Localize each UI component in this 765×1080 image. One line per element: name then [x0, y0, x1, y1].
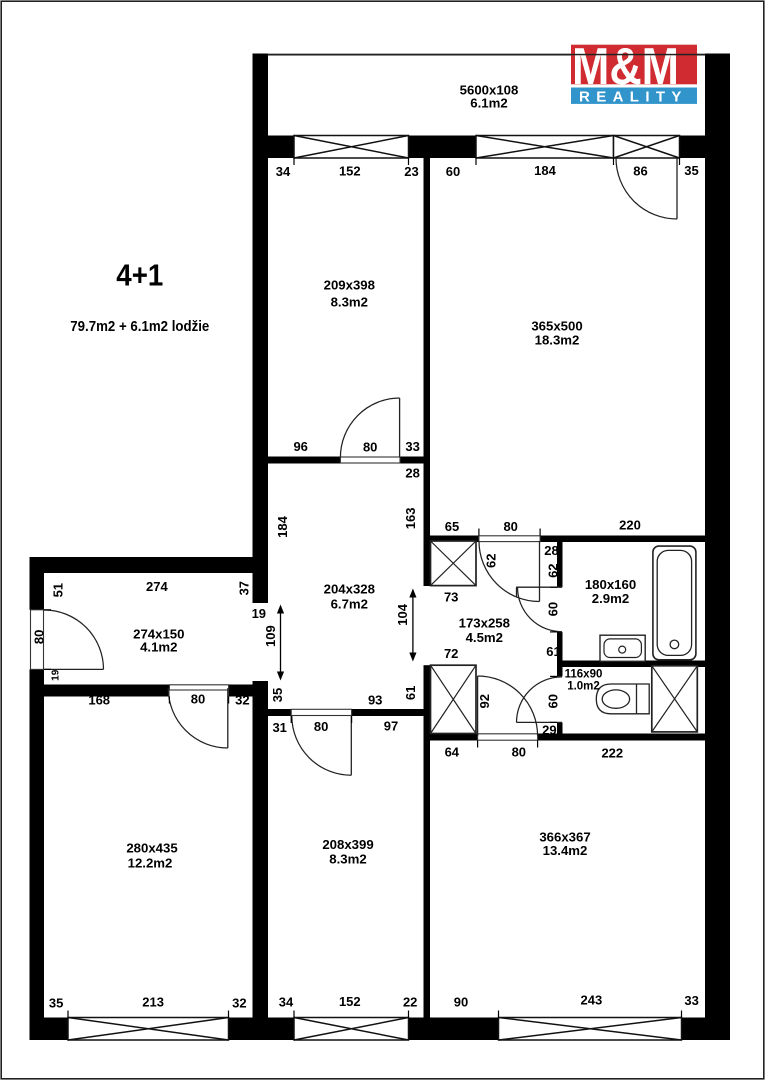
svg-text:222: 222 [601, 745, 623, 760]
svg-text:65: 65 [445, 519, 459, 534]
svg-text:80: 80 [314, 719, 328, 734]
svg-text:6.1m2: 6.1m2 [470, 96, 507, 111]
svg-text:61: 61 [403, 686, 418, 700]
svg-text:2.9m2: 2.9m2 [592, 591, 629, 606]
svg-text:220: 220 [619, 517, 641, 532]
svg-text:104: 104 [395, 603, 410, 625]
svg-text:37: 37 [236, 581, 251, 595]
svg-text:243: 243 [581, 992, 603, 1007]
svg-text:97: 97 [384, 718, 398, 733]
svg-text:M&M: M&M [572, 38, 679, 96]
svg-text:72: 72 [444, 646, 458, 661]
svg-text:184: 184 [534, 163, 556, 178]
svg-text:29: 29 [542, 722, 556, 737]
svg-text:173x258: 173x258 [459, 616, 510, 631]
svg-text:280x435: 280x435 [126, 841, 177, 856]
svg-text:60: 60 [545, 694, 560, 708]
svg-text:168: 168 [88, 692, 110, 707]
svg-text:213: 213 [142, 994, 164, 1009]
svg-text:180x160: 180x160 [585, 577, 636, 592]
svg-text:35: 35 [49, 995, 63, 1010]
svg-text:109: 109 [263, 625, 278, 647]
svg-text:34: 34 [276, 164, 291, 179]
svg-text:23: 23 [404, 164, 418, 179]
svg-text:33: 33 [684, 993, 698, 1008]
svg-text:96: 96 [293, 439, 307, 454]
svg-text:90: 90 [454, 994, 468, 1009]
svg-text:61: 61 [546, 644, 560, 659]
svg-text:32: 32 [235, 692, 249, 707]
svg-text:116x90: 116x90 [565, 668, 603, 680]
svg-text:204x328: 204x328 [324, 582, 375, 597]
svg-text:12.2m2: 12.2m2 [128, 856, 173, 871]
svg-text:152: 152 [339, 163, 361, 178]
svg-text:31: 31 [272, 720, 286, 735]
svg-text:86: 86 [633, 163, 647, 178]
svg-text:80: 80 [503, 519, 517, 534]
svg-text:80: 80 [191, 691, 205, 706]
svg-text:4.5m2: 4.5m2 [466, 630, 503, 645]
svg-text:80: 80 [512, 745, 526, 760]
svg-text:209x398: 209x398 [324, 278, 375, 293]
svg-text:60: 60 [446, 164, 460, 179]
svg-text:6.7m2: 6.7m2 [331, 597, 368, 612]
svg-text:92: 92 [477, 694, 492, 708]
svg-text:REALITY: REALITY [579, 88, 689, 105]
svg-text:4.1m2: 4.1m2 [140, 640, 177, 655]
svg-text:35: 35 [684, 163, 698, 178]
svg-text:19: 19 [252, 606, 266, 621]
svg-text:1.0m2: 1.0m2 [567, 680, 600, 692]
svg-text:163: 163 [403, 508, 418, 530]
svg-text:18.3m2: 18.3m2 [535, 333, 580, 348]
svg-text:80: 80 [363, 439, 377, 454]
svg-text:73: 73 [444, 590, 458, 605]
svg-text:35: 35 [270, 688, 285, 702]
svg-text:22: 22 [403, 994, 417, 1009]
svg-text:33: 33 [405, 439, 419, 454]
svg-text:152: 152 [339, 994, 361, 1009]
svg-text:4+1: 4+1 [116, 258, 163, 293]
svg-text:19: 19 [50, 669, 61, 681]
svg-text:8.3m2: 8.3m2 [331, 295, 368, 310]
svg-text:28: 28 [544, 543, 558, 558]
svg-text:79.7m2 + 6.1m2 lodžie: 79.7m2 + 6.1m2 lodžie [70, 318, 209, 335]
svg-text:62: 62 [483, 554, 498, 568]
svg-text:34: 34 [279, 994, 294, 1009]
svg-text:51: 51 [50, 583, 65, 597]
svg-text:274: 274 [146, 579, 168, 594]
svg-text:32: 32 [232, 995, 246, 1010]
svg-text:13.4m2: 13.4m2 [543, 843, 588, 858]
svg-text:208x399: 208x399 [322, 837, 373, 852]
svg-text:365x500: 365x500 [531, 319, 582, 334]
svg-text:62: 62 [545, 563, 560, 577]
svg-text:184: 184 [275, 515, 290, 537]
svg-text:60: 60 [545, 602, 560, 616]
svg-text:64: 64 [445, 745, 460, 760]
svg-text:8.3m2: 8.3m2 [329, 852, 366, 867]
svg-text:28: 28 [405, 465, 419, 480]
svg-text:80: 80 [32, 630, 47, 644]
svg-text:93: 93 [368, 693, 382, 708]
